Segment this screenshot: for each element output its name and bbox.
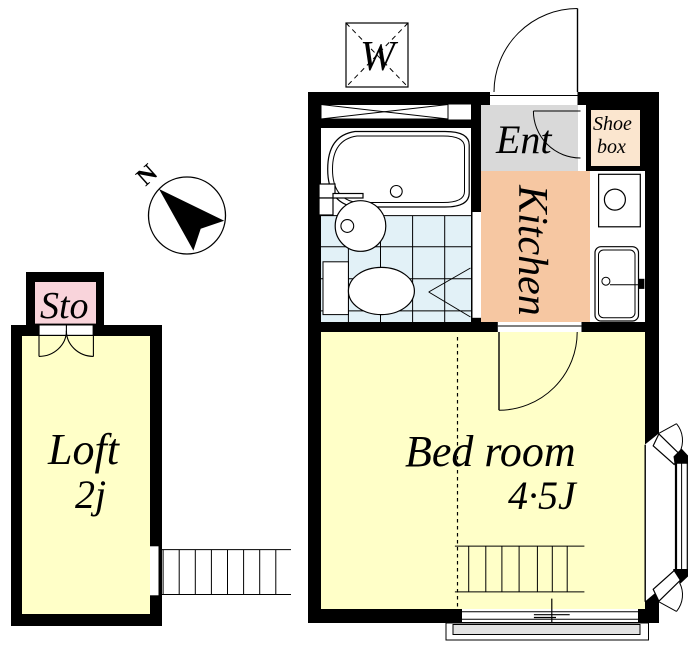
svg-text:W: W bbox=[360, 34, 399, 80]
svg-text:Kitchen: Kitchen bbox=[509, 184, 555, 316]
svg-text:N: N bbox=[131, 159, 162, 191]
svg-text:Ent: Ent bbox=[495, 117, 552, 162]
svg-text:Bed room: Bed room bbox=[405, 427, 576, 476]
svg-text:Shoe: Shoe bbox=[593, 113, 632, 135]
svg-text:Sto: Sto bbox=[40, 285, 89, 327]
svg-text:Loft: Loft bbox=[47, 425, 121, 474]
svg-text:2j: 2j bbox=[75, 472, 106, 517]
svg-text:4·5J: 4·5J bbox=[508, 473, 578, 518]
svg-text:box: box bbox=[597, 136, 626, 158]
